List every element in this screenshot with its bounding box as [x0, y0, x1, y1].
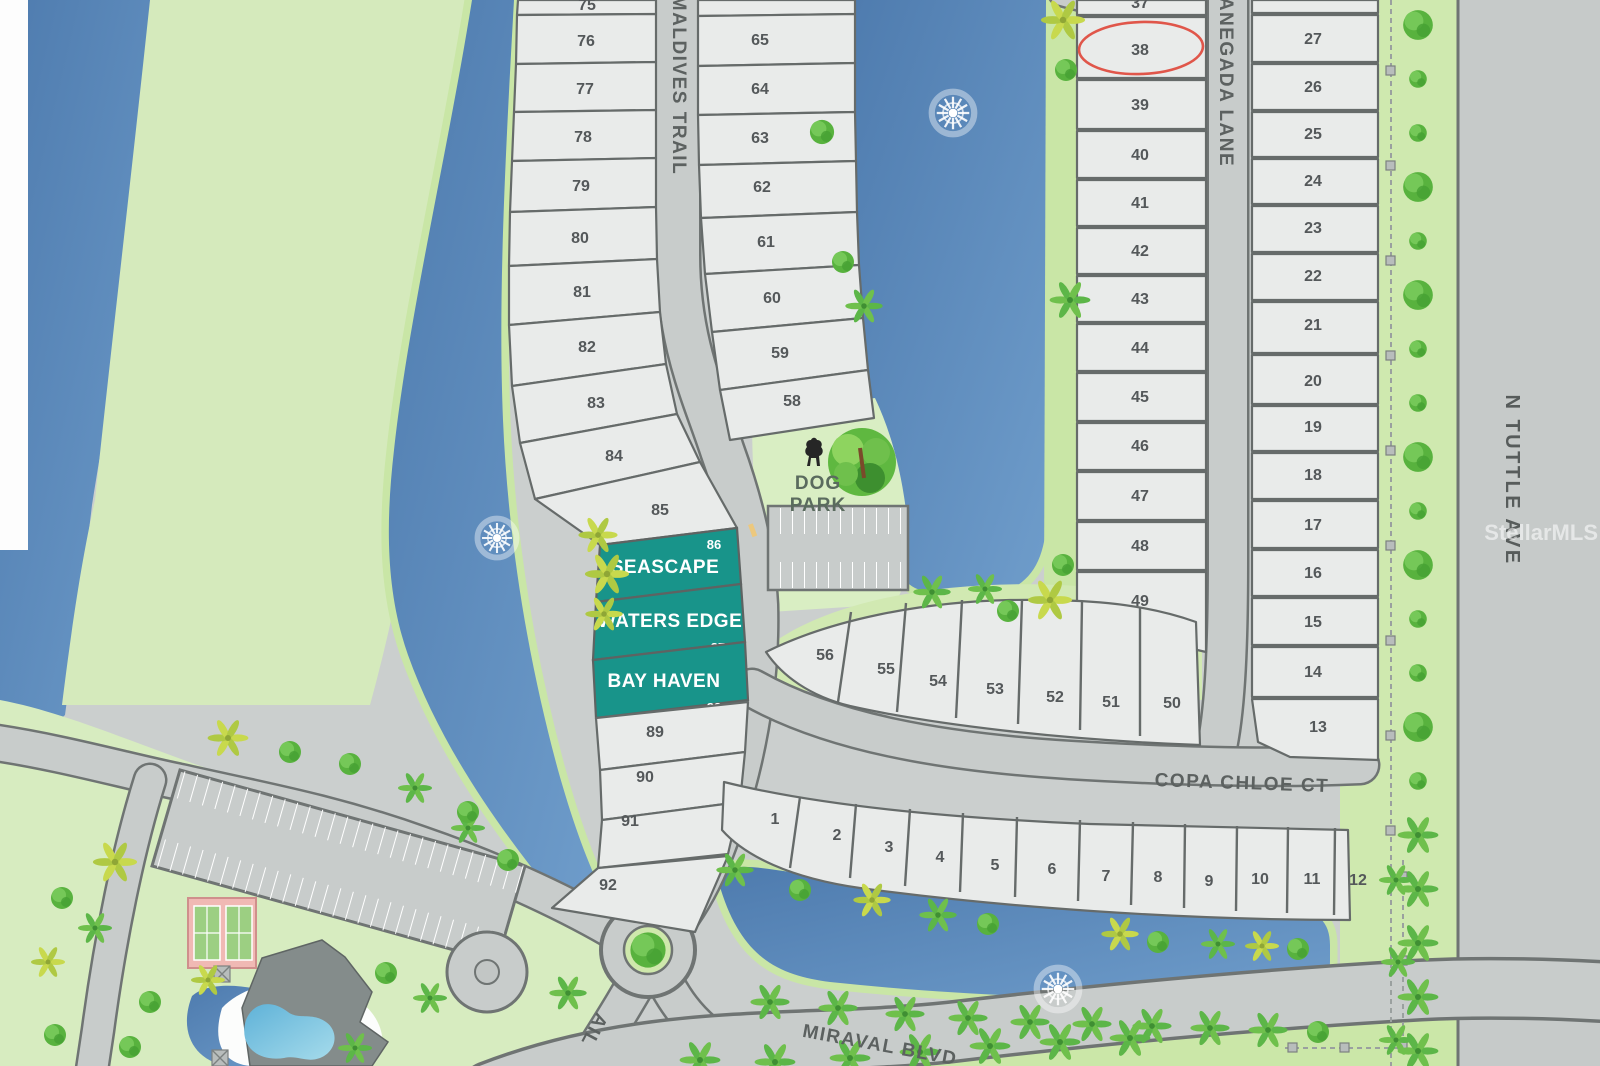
lot-number: 56: [816, 647, 834, 664]
featured-lot-name: BAY HAVEN: [608, 671, 721, 692]
lot-number: 38: [1131, 42, 1149, 59]
lot-number: 26: [1304, 79, 1322, 96]
tree-icon: [1403, 172, 1433, 202]
tree-icon: [1287, 938, 1309, 960]
lot-number: 90: [636, 769, 654, 786]
lot-number: 11: [1304, 871, 1321, 888]
lot: 64: [698, 63, 855, 115]
lot-number: 47: [1131, 488, 1149, 505]
lot-number: 82: [578, 339, 596, 356]
lot: 25: [1252, 112, 1378, 157]
watermark-stellar-mls: StellarMLS: [1484, 520, 1598, 545]
lot: 47: [1077, 472, 1206, 520]
lot: 41: [1077, 180, 1206, 226]
lot-number: 39: [1131, 97, 1149, 114]
lot: 77: [514, 62, 656, 112]
lot-number: 8: [1154, 869, 1163, 886]
lot-number: 12: [1349, 872, 1367, 889]
lot: 26: [1252, 64, 1378, 110]
tree-icon: [139, 991, 161, 1013]
lot-number: 48: [1131, 538, 1149, 555]
lot-number: 61: [757, 234, 775, 251]
lot-number: 23: [1304, 220, 1322, 237]
dog-park-label: PARK: [790, 495, 846, 516]
lot: 48: [1077, 522, 1206, 570]
lot-number: 46: [1131, 438, 1149, 455]
left-margin: [0, 0, 28, 552]
lot-highlighted: 38: [1077, 17, 1206, 78]
lot: 37: [1077, 0, 1206, 15]
lot: 62: [699, 161, 857, 218]
lot-number: 76: [577, 33, 595, 50]
lot-number: 65: [751, 32, 769, 49]
lot-column-anegada-east: 27 26 25 24 23 22 21 20 19 18 17 16 15 1…: [1252, 0, 1378, 760]
tree-icon-roundabout: [630, 932, 665, 967]
lot-number: 21: [1304, 317, 1322, 334]
lot-number: 81: [573, 284, 591, 301]
lot-number: 54: [929, 673, 947, 690]
lot-number: 80: [571, 230, 589, 247]
tree-icon: [1409, 124, 1427, 142]
tree-icon: [279, 741, 301, 763]
lot: 80: [509, 207, 657, 266]
lot: 18: [1252, 453, 1378, 499]
lot: 46: [1077, 423, 1206, 470]
lot-number: 14: [1304, 664, 1322, 681]
lot-number: 24: [1304, 173, 1322, 190]
lot-number: 16: [1304, 565, 1322, 582]
lot-number: 19: [1304, 419, 1322, 436]
tree-icon: [810, 120, 834, 144]
lot-number: 62: [753, 179, 771, 196]
fountain-icon: [1037, 968, 1080, 1011]
lot: 63: [698, 112, 856, 165]
lot-number: 9: [1205, 873, 1214, 890]
tree-icon: [1403, 712, 1433, 742]
tree-icon: [1409, 340, 1427, 358]
tennis-courts: [188, 898, 256, 968]
lot-column-maldives-east: 65 64 63 62 61 60 59 58: [698, 0, 874, 440]
lot: 39: [1077, 80, 1206, 129]
tree-icon: [1409, 664, 1427, 682]
lot: 79: [510, 158, 656, 212]
tree-icon: [119, 1036, 141, 1058]
lot-number: 27: [1304, 31, 1322, 48]
lot-number: 6: [1048, 861, 1057, 878]
lot-number: 18: [1304, 467, 1322, 484]
plat-map-canvas: 75 76 77 78 79 80 81 82 83 84 85 86 SEAS…: [0, 0, 1600, 1066]
lot-number: 25: [1304, 126, 1322, 143]
lot-number: 10: [1251, 871, 1269, 888]
lot-number: 5: [991, 857, 1000, 874]
lot-number: 59: [771, 345, 789, 362]
lot-number: 4: [936, 849, 945, 866]
lot: 42: [1077, 228, 1206, 274]
lot-number: 83: [587, 395, 605, 412]
lot: 76: [516, 14, 656, 64]
tree-icon: [1409, 610, 1427, 628]
tree-icon: [44, 1024, 66, 1046]
tree-icon: [339, 753, 361, 775]
lot-number: 41: [1131, 195, 1149, 212]
tree-icon: [1052, 554, 1074, 576]
tree-icon: [1403, 550, 1433, 580]
tree-icon: [1409, 232, 1427, 250]
lot-number: 1: [771, 811, 780, 828]
tree-icon: [977, 913, 999, 935]
lot-number: 43: [1131, 291, 1149, 308]
lot-number: 51: [1102, 694, 1120, 711]
lot: 78: [512, 110, 656, 161]
lot: 22: [1252, 254, 1378, 300]
lot: 43: [1077, 276, 1206, 322]
tree-icon: [497, 849, 519, 871]
lot-number: 84: [605, 448, 623, 465]
lot-number: 75: [578, 0, 596, 14]
lot-number: 58: [783, 393, 801, 410]
tree-icon: [1409, 70, 1427, 88]
tree-icon: [457, 801, 479, 823]
lot: 44: [1077, 324, 1206, 371]
lot-number: 40: [1131, 147, 1149, 164]
tree-icon: [1147, 931, 1169, 953]
lot: 45: [1077, 373, 1206, 421]
lot: 21: [1252, 302, 1378, 353]
lot: 19: [1252, 406, 1378, 451]
lot-number: 15: [1304, 614, 1322, 631]
lot: 20: [1252, 355, 1378, 404]
lot-number: 7: [1102, 868, 1111, 885]
tree-icon: [1409, 394, 1427, 412]
lot-number: 55: [877, 661, 895, 678]
parking-lot-dog-park: [768, 506, 908, 590]
lot-number: 78: [574, 129, 592, 146]
lot-number: 2: [833, 827, 842, 844]
lot-number: 53: [986, 681, 1004, 698]
tree-icon: [1403, 10, 1433, 40]
lot: 15: [1252, 598, 1378, 645]
lot: 24: [1252, 159, 1378, 204]
lot-number: 42: [1131, 243, 1149, 260]
tree-icon: [1409, 502, 1427, 520]
lot: 40: [1077, 131, 1206, 178]
lot-number: 85: [651, 502, 669, 519]
dog-park-label: DOG: [795, 473, 841, 494]
lot-number: 89: [646, 724, 664, 741]
lot-number: 45: [1131, 389, 1149, 406]
lot: 27: [1252, 15, 1378, 62]
tree-icon: [1403, 442, 1433, 472]
tree-icon: [1307, 1021, 1329, 1043]
lot-number: 3: [885, 839, 894, 856]
fountain-icon: [932, 92, 975, 135]
lot-number: 13: [1309, 719, 1327, 736]
tree-icon: [789, 879, 811, 901]
lot-number: 44: [1131, 340, 1149, 357]
lot: 75: [517, 0, 656, 15]
lot-number: 17: [1304, 517, 1322, 534]
lot-column-anegada-west: 37 38 39 40 41 42 43 44 45 46 47 48 49: [1077, 0, 1206, 652]
tree-icon: [51, 887, 73, 909]
lot-number: 52: [1046, 689, 1064, 706]
lot-number: 79: [572, 178, 590, 195]
lot-number: 50: [1163, 695, 1181, 712]
lot-number: 20: [1304, 373, 1322, 390]
lot-number: 60: [763, 290, 781, 307]
tree-icon: [997, 600, 1019, 622]
lot-number: 37: [1131, 0, 1149, 12]
tree-icon: [1403, 280, 1433, 310]
street-label-maldives-trail: MALDIVES TRAIL: [668, 0, 689, 175]
tree-icon: [1409, 772, 1427, 790]
lot-number: 92: [599, 877, 617, 894]
lot: 17: [1252, 501, 1378, 548]
lot-number: 91: [621, 813, 639, 830]
tree-icon: [1055, 59, 1077, 81]
lot-number: 63: [751, 130, 769, 147]
lot-partial: [1252, 0, 1378, 13]
lot: 23: [1252, 206, 1378, 252]
lot: 14: [1252, 647, 1378, 697]
lot-number: 86: [707, 537, 721, 552]
tree-icon: [832, 251, 854, 273]
site-plan-map: 75 76 77 78 79 80 81 82 83 84 85 86 SEAS…: [0, 0, 1600, 1066]
tree-icon: [375, 962, 397, 984]
lot-number: 77: [576, 81, 594, 98]
lot: 16: [1252, 550, 1378, 596]
street-label-anegada-lane: ANEGADA LANE: [1215, 0, 1236, 167]
fountain-icon: [477, 518, 516, 557]
lot-number: 22: [1304, 268, 1322, 285]
lot-number: 64: [751, 81, 769, 98]
lot: 65: [698, 14, 855, 66]
